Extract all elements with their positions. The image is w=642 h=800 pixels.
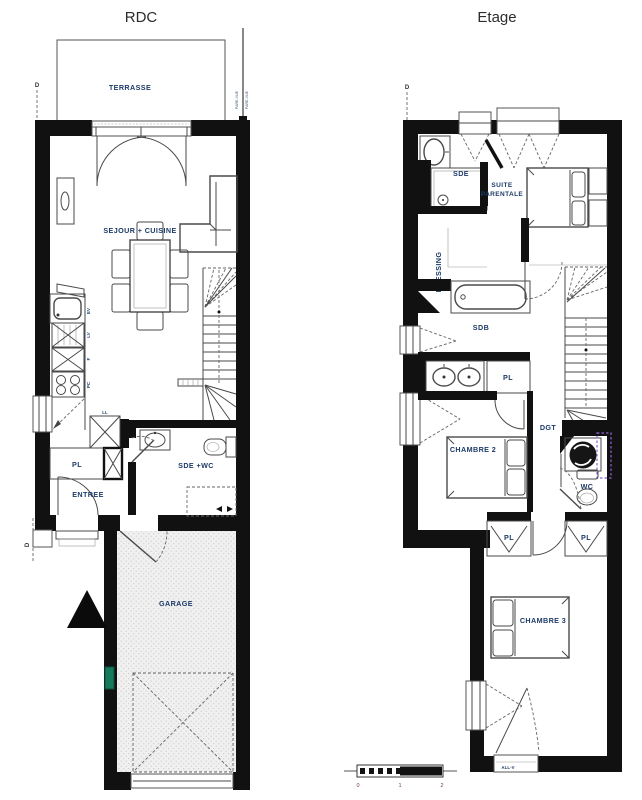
garage-label: GARAGE (159, 599, 193, 608)
kitchen-label-pc: PC (86, 382, 91, 388)
nightstand (589, 200, 607, 226)
etage-top-windows (459, 108, 559, 168)
pare-vue-label-right: PARE-VUE (245, 90, 249, 109)
scale-bar: 0 1 2 (344, 765, 457, 789)
suite-parentale-label-2: PARENTALE (481, 191, 524, 198)
rdc-left-window (33, 396, 52, 432)
sofa (180, 176, 237, 252)
pare-vue-screen: PARE-VUE PARE-VUE (235, 28, 249, 124)
toilet-tank (226, 437, 236, 457)
chambre3-label: CHAMBRE 3 (520, 616, 566, 625)
closet-left-label: PL (504, 533, 514, 542)
all-v-label: ALL-V (501, 765, 514, 770)
floor-plan-sheet: RDC TERRASSE PARE-VUE PARE-VUE D D (0, 0, 642, 800)
rdc-plan: RDC TERRASSE PARE-VUE PARE-VUE D D (25, 9, 250, 790)
sejour-cuisine-label: SEJOUR + CUISINE (103, 226, 176, 235)
north-arrow-icon (67, 590, 107, 628)
pare-vue-label-left: PARE-VUE (235, 90, 239, 109)
vent-arrow-icon (216, 506, 222, 512)
rdc-section-marker-top-label: D (35, 83, 40, 89)
rdc-section-marker-bottom: D (25, 518, 33, 562)
floor-plan-drawing: RDC TERRASSE PARE-VUE PARE-VUE D D (0, 0, 642, 800)
wc-room: WC (560, 433, 611, 509)
rdc-shower-wc: SDE +WC (132, 430, 236, 516)
kitchen-strip: EV LV F PC (50, 284, 91, 430)
closet-right-label: PL (581, 533, 591, 542)
sdb-label: SDB (473, 323, 489, 332)
washing-machine-box: LL (90, 410, 120, 448)
dining-table-set (112, 222, 188, 330)
garage-meter-marker (105, 667, 114, 689)
cooktop (52, 372, 84, 397)
terrace-french-door (92, 121, 191, 186)
rdc-section-marker-top: D (35, 83, 40, 120)
sde-wc-label: SDE +WC (178, 461, 214, 470)
nightstand (589, 168, 607, 194)
rdc-title: RDC (125, 9, 158, 26)
chambre2-label: CHAMBRE 2 (450, 445, 496, 454)
etage-staircase (562, 267, 612, 436)
bedroom-2: CHAMBRE 2 (447, 400, 533, 512)
chambre3-bed (491, 597, 569, 658)
kitchen-label-f: F (86, 357, 91, 360)
etage-section-marker-top: D (405, 85, 410, 120)
etage-title: Etage (477, 9, 516, 26)
etage-section-marker-label: D (405, 85, 410, 91)
dgt-label: DGT (540, 423, 557, 432)
suite-parentale-label-1: SUITE (491, 182, 512, 189)
bathroom: SDB PL (418, 279, 533, 400)
vent-arrow-icon (227, 506, 233, 512)
entry-door (56, 477, 98, 546)
chambre3-window (466, 681, 486, 730)
garage: GARAGE (105, 531, 236, 788)
washing-machine-label: LL (102, 410, 108, 415)
entree-label: ENTREE (72, 490, 104, 499)
rdc-section-marker-bottom-label: D (25, 542, 31, 547)
rdc-closet: PL (50, 448, 122, 479)
tv-unit (57, 178, 74, 224)
scale-tick-2: 2 (440, 783, 443, 789)
etage-shower-room: SDE (418, 136, 502, 214)
sde-label: SDE (453, 169, 469, 178)
scale-tick-1: 1 (398, 783, 401, 789)
kitchen-label-lv: LV (86, 332, 91, 337)
etage-plan: Etage D (400, 9, 622, 772)
terrasse-outline (57, 40, 225, 122)
rdc-lower-left-window (33, 530, 52, 547)
garage-floor (117, 531, 236, 772)
stair-handrail (178, 379, 203, 386)
rdc-staircase (178, 268, 236, 420)
bathroom-closet-label: PL (503, 373, 513, 382)
master-suite: SUITE PARENTALE (481, 168, 607, 299)
landing-closets: PL PL (487, 512, 612, 556)
terrasse-label: TERRASSE (109, 83, 151, 92)
scale-tick-0: 0 (356, 783, 359, 789)
rdc-closet-label: PL (72, 460, 82, 469)
kitchen-label-ev: EV (86, 308, 91, 314)
